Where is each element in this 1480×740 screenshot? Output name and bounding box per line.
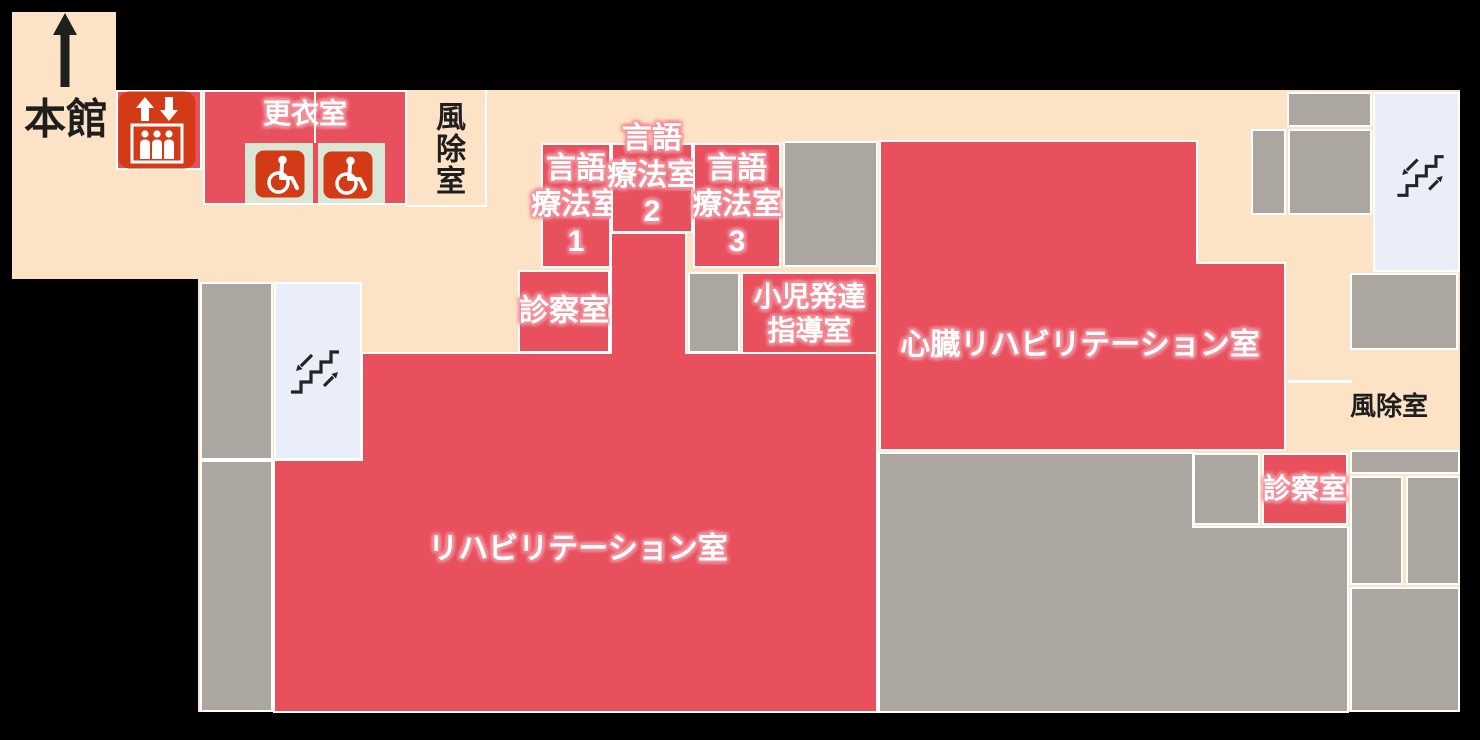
vestibule-top-label: 風除室 (432, 101, 462, 197)
exam-room-left-label: 診察室 (519, 293, 609, 330)
wheelchair-icon-right (323, 151, 373, 199)
stairs-icon-left (287, 342, 343, 400)
room-label-line: 本館 (24, 93, 108, 144)
vestibule-right-label: 風除室 (1350, 391, 1428, 423)
gray-room-right-e (1406, 476, 1460, 585)
floor-map: 更衣室風除室言語療法室1言語療法室2言語療法室3診察室小児発達指導室心臓リハビリ… (0, 0, 1480, 740)
changing-room-divider (314, 92, 316, 143)
room-label-line: 診察室 (519, 293, 609, 330)
room-label-line: 風除室 (432, 101, 462, 197)
room-label-line: リハビリテーション室 (428, 532, 727, 569)
room-label-line: 更衣室 (263, 97, 347, 131)
gray-room-right-mid (1350, 273, 1458, 350)
gray-room-topright-b (1251, 129, 1286, 215)
vestibule-right-top-line (1288, 380, 1352, 383)
cardiac-rehabilitation-room-label: 心臓リハビリテーション室 (900, 328, 1259, 365)
elevator-icon (118, 91, 196, 169)
room-label-line: 療法室 (607, 158, 697, 195)
gray-room-left-lower (200, 460, 273, 712)
stairs-icon-right (1393, 147, 1448, 203)
gray-room-next-to-exam (1193, 453, 1260, 525)
gray-room-topright-a (1287, 92, 1372, 127)
wheelchair-icon-left (255, 150, 305, 198)
room-label-line: 心臓リハビリテーション室 (900, 328, 1259, 365)
room-label-line: 言語 (607, 121, 697, 158)
exam-room-right-label: 診察室 (1263, 472, 1347, 506)
room-label-line: 指導室 (753, 314, 865, 348)
room-label-line: 療法室 (692, 187, 782, 224)
rehabilitation-room-label: リハビリテーション室 (428, 532, 727, 569)
gray-room-topright-c (1288, 129, 1372, 215)
room-label-line: 言語 (692, 151, 782, 188)
room-label-line: 診察室 (1263, 472, 1347, 506)
gray-room-left-upper (200, 282, 273, 460)
changing-room-label: 更衣室 (263, 97, 347, 131)
speech-therapy-room-2-label: 言語療法室2 (607, 121, 697, 231)
gray-room-center-upper (783, 141, 878, 267)
room-label-line: 小児発達 (753, 279, 865, 313)
pediatric-development-room-label: 小児発達指導室 (753, 279, 865, 347)
room-label-line: 2 (607, 194, 697, 231)
speech-therapy-room-3-label: 言語療法室3 (692, 151, 782, 261)
main-building-label: 本館 (24, 93, 108, 144)
gray-room-center-small (688, 272, 740, 353)
room-label-line: 風除室 (1350, 391, 1428, 423)
up-arrow-icon (53, 13, 77, 87)
gray-room-right-d (1350, 476, 1403, 585)
room-label-line: 3 (692, 224, 782, 261)
gray-room-right-f (1350, 587, 1460, 712)
gray-room-right-band (1350, 450, 1460, 474)
